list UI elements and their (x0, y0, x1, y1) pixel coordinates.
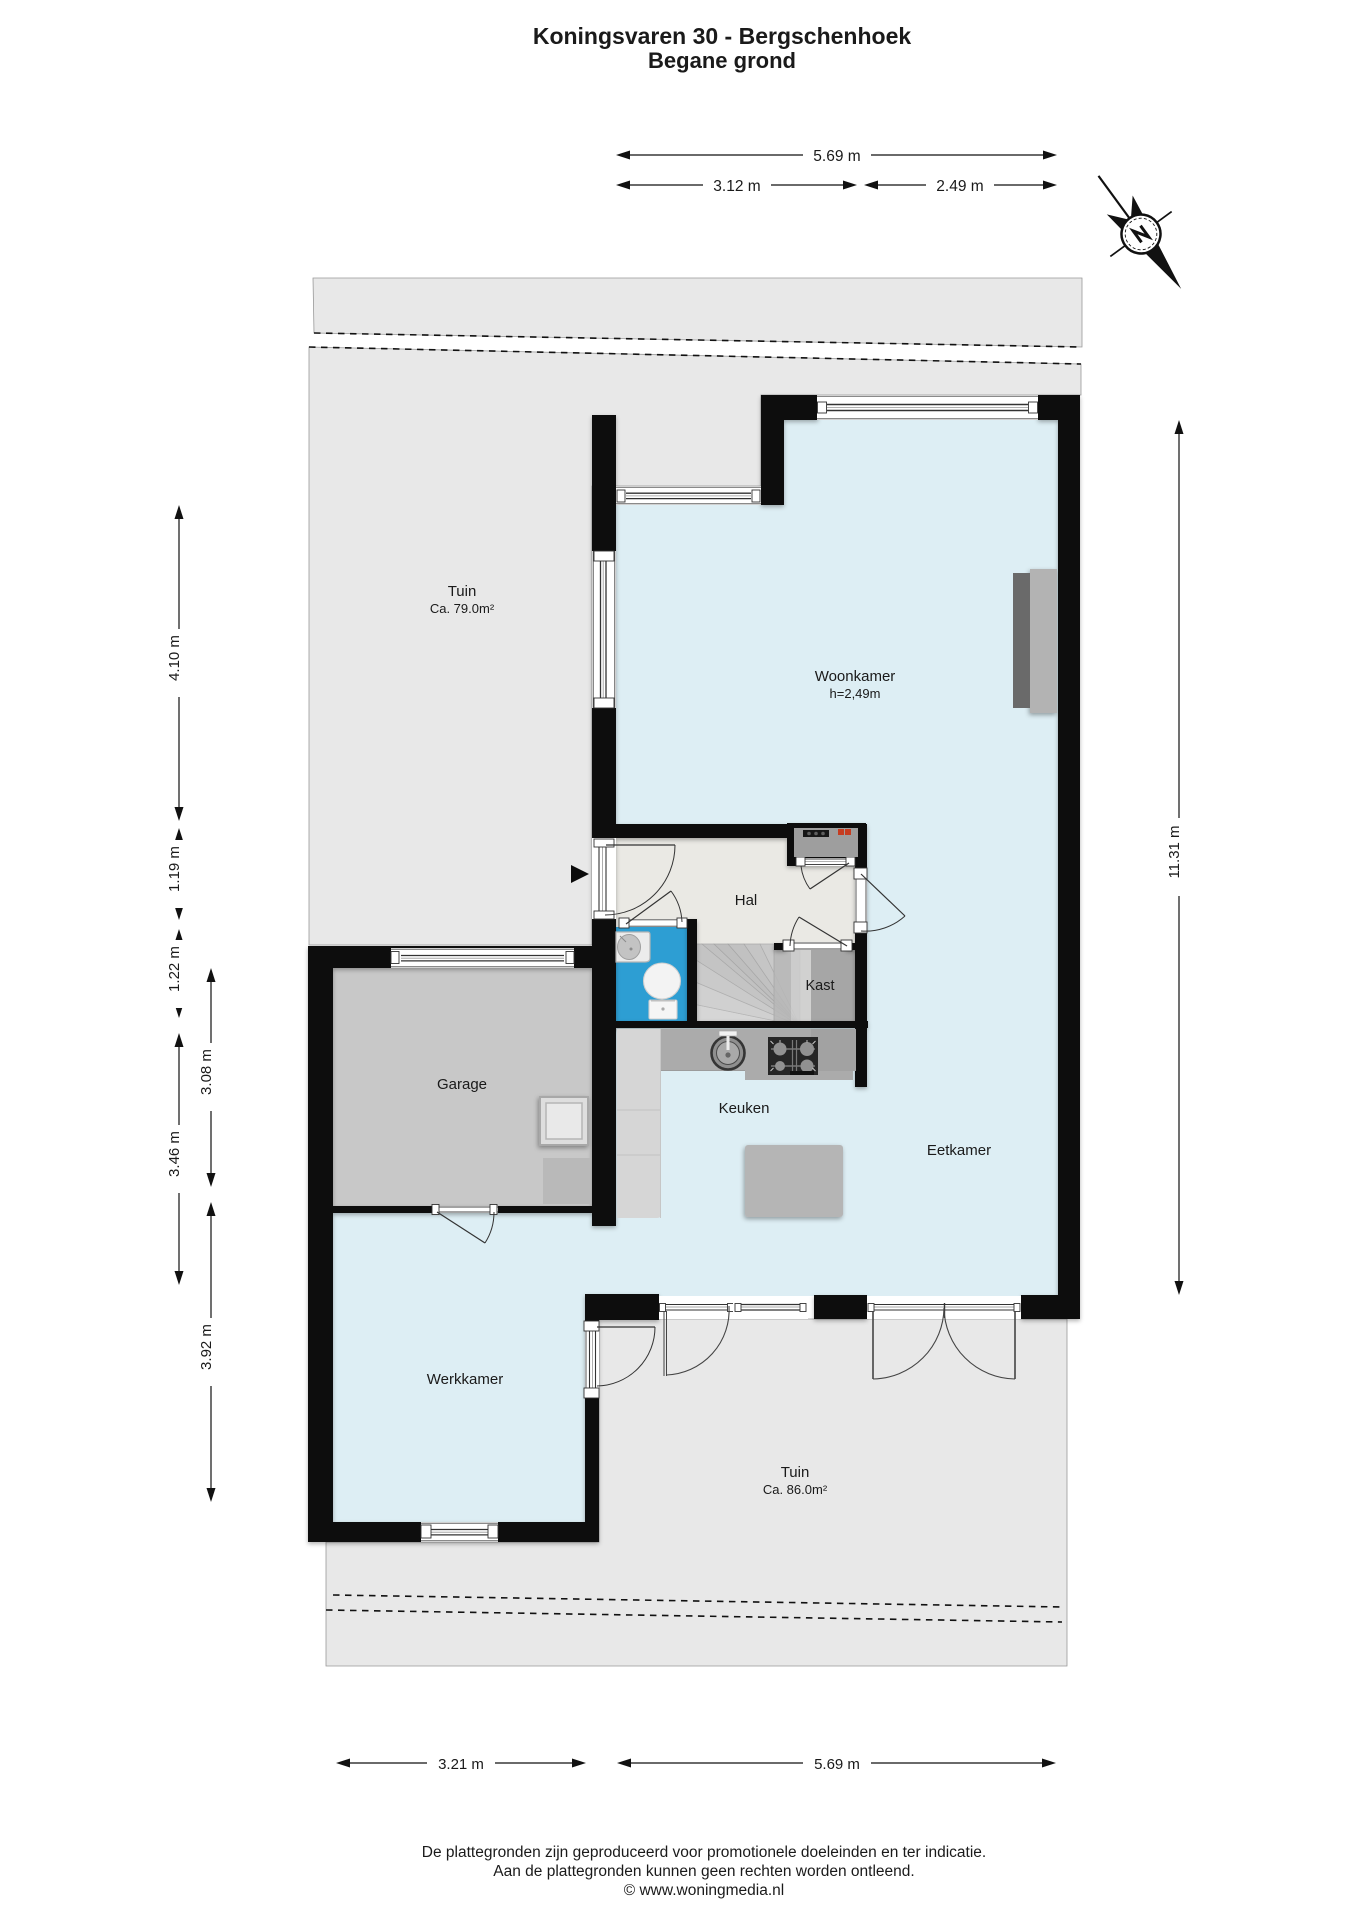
svg-text:1.19 m: 1.19 m (166, 846, 183, 892)
svg-text:h=2,49m: h=2,49m (830, 686, 881, 701)
svg-text:5.69 m: 5.69 m (814, 1756, 860, 1773)
svg-text:3.46 m: 3.46 m (166, 1131, 183, 1177)
svg-text:3.92 m: 3.92 m (198, 1324, 215, 1370)
svg-text:Tuin: Tuin (781, 1464, 810, 1481)
svg-text:Ca. 86.0m²: Ca. 86.0m² (763, 1482, 828, 1497)
svg-text:Begane grond: Begane grond (648, 48, 796, 73)
svg-text:© www.woningmedia.nl: © www.woningmedia.nl (624, 1882, 784, 1899)
svg-text:2.49 m: 2.49 m (936, 178, 983, 195)
svg-text:Woonkamer: Woonkamer (815, 668, 896, 685)
svg-text:3.21 m: 3.21 m (438, 1756, 484, 1773)
svg-text:4.10 m: 4.10 m (166, 635, 183, 681)
svg-text:Hal: Hal (735, 892, 758, 909)
svg-text:Garage: Garage (437, 1076, 487, 1093)
svg-text:Ca. 79.0m²: Ca. 79.0m² (430, 601, 495, 616)
svg-text:3.08 m: 3.08 m (198, 1049, 215, 1095)
svg-text:Aan de plattegronden kunnen ge: Aan de plattegronden kunnen geen rechten… (493, 1863, 914, 1880)
svg-text:11.31 m: 11.31 m (1166, 825, 1183, 878)
svg-text:3.12 m: 3.12 m (713, 178, 760, 195)
svg-text:1.22 m: 1.22 m (166, 946, 183, 992)
svg-text:Kast: Kast (805, 978, 834, 994)
svg-text:Tuin: Tuin (448, 583, 477, 600)
svg-text:5.69 m: 5.69 m (813, 148, 860, 165)
svg-text:Koningsvaren 30 - Bergschenhoe: Koningsvaren 30 - Bergschenhoek (533, 23, 912, 49)
svg-text:Eetkamer: Eetkamer (927, 1142, 991, 1159)
svg-text:De plattegronden zijn geproduc: De plattegronden zijn geproduceerd voor … (422, 1844, 986, 1861)
svg-text:Werkkamer: Werkkamer (427, 1371, 503, 1388)
svg-text:Keuken: Keuken (719, 1100, 770, 1117)
